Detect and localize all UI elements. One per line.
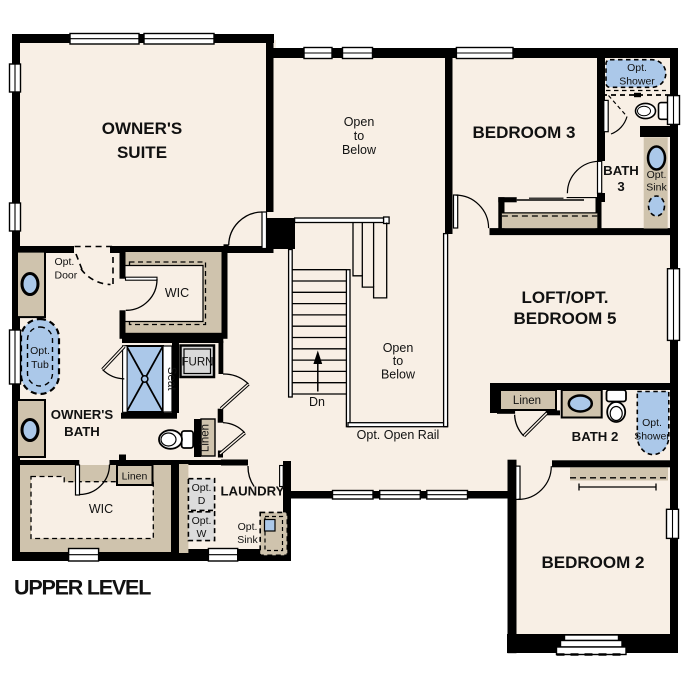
svg-text:WIC: WIC [89, 502, 113, 516]
svg-text:W: W [197, 528, 207, 540]
svg-text:BATH 2: BATH 2 [572, 429, 619, 444]
svg-text:LOFT/OPT.: LOFT/OPT. [522, 288, 609, 307]
svg-text:Linen: Linen [122, 471, 148, 483]
svg-text:Sink: Sink [646, 182, 667, 194]
svg-text:OWNER'S: OWNER'S [51, 407, 114, 422]
svg-text:D: D [198, 495, 206, 507]
svg-text:BATH: BATH [603, 163, 639, 178]
svg-text:SUITE: SUITE [117, 143, 167, 162]
svg-text:OWNER'S: OWNER'S [102, 119, 183, 138]
svg-text:BEDROOM 3: BEDROOM 3 [473, 123, 576, 142]
svg-text:WIC: WIC [165, 286, 189, 300]
svg-text:BEDROOM 2: BEDROOM 2 [542, 553, 645, 572]
svg-text:Dn: Dn [309, 395, 325, 409]
svg-text:Below: Below [342, 143, 377, 157]
svg-text:Opt.: Opt. [30, 345, 50, 357]
svg-text:Opt.: Opt. [192, 515, 212, 527]
svg-text:Tub: Tub [31, 359, 49, 371]
svg-text:3: 3 [617, 179, 624, 194]
svg-text:Sink: Sink [237, 534, 258, 546]
svg-text:Seat: Seat [165, 367, 177, 391]
svg-text:Linen: Linen [200, 424, 212, 452]
svg-text:Shower: Shower [634, 431, 670, 443]
svg-text:Opt.: Opt. [647, 169, 667, 181]
svg-text:Linen: Linen [513, 395, 541, 407]
svg-text:Shower: Shower [619, 76, 655, 88]
svg-text:Open: Open [383, 341, 414, 355]
svg-text:BATH: BATH [64, 424, 100, 439]
svg-text:Door: Door [55, 270, 78, 282]
svg-text:Opt.: Opt. [627, 62, 647, 74]
svg-text:Opt.: Opt. [642, 417, 662, 429]
svg-text:Opt. Open Rail: Opt. Open Rail [357, 428, 440, 442]
svg-text:Opt.: Opt. [238, 521, 258, 533]
svg-text:to: to [354, 129, 364, 143]
svg-text:BEDROOM 5: BEDROOM 5 [514, 309, 617, 328]
svg-text:UPPER LEVEL: UPPER LEVEL [14, 576, 151, 600]
svg-text:FURN: FURN [182, 357, 214, 369]
svg-text:Below: Below [381, 368, 416, 382]
svg-text:Opt.: Opt. [192, 482, 212, 494]
svg-text:Opt.: Opt. [55, 256, 75, 268]
svg-text:LAUNDRY: LAUNDRY [221, 484, 285, 499]
svg-text:to: to [393, 354, 403, 368]
svg-text:Open: Open [344, 115, 375, 129]
